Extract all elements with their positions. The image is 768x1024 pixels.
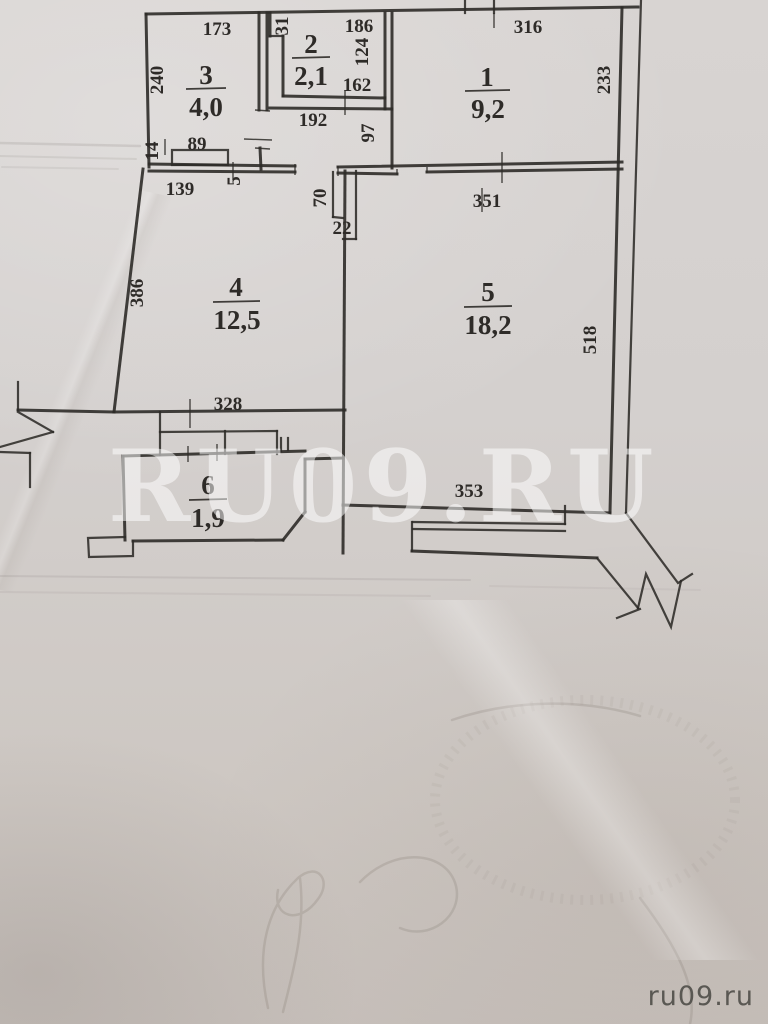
- stamp-ghost: [435, 700, 735, 900]
- dim-14: 14: [142, 141, 163, 161]
- dim-233: 233: [594, 66, 615, 95]
- dim-124: 124: [352, 37, 373, 66]
- floorplan-photo: 1 9,2 2 2,1 3 4,0 4 12,5 5 18,2 6 1,9 17…: [0, 0, 768, 1024]
- dim-31: 31: [272, 17, 293, 36]
- dim-386: 386: [127, 279, 148, 308]
- room-6-number: 6: [201, 470, 215, 500]
- pen-impression-scribbles: [263, 704, 692, 1024]
- room-3-number: 3: [199, 60, 213, 90]
- dim-97: 97: [358, 123, 379, 143]
- room-4-number: 4: [229, 272, 243, 302]
- dim-5: 5: [224, 176, 245, 186]
- room-6-area: 1,9: [191, 503, 225, 533]
- walls-thick: [18, 7, 638, 558]
- dim-351: 351: [473, 191, 502, 212]
- dim-316: 316: [514, 17, 543, 38]
- dim-162: 162: [343, 75, 372, 96]
- dim-328: 328: [214, 394, 243, 415]
- dim-518: 518: [580, 326, 601, 355]
- room-3-area: 4,0: [189, 92, 223, 122]
- dim-186: 186: [345, 16, 374, 37]
- room-1-area: 9,2: [471, 94, 505, 124]
- room-5-area: 18,2: [464, 310, 511, 340]
- floorplan-drawing: 1 9,2 2 2,1 3 4,0 4 12,5 5 18,2 6 1,9 17…: [0, 0, 768, 1024]
- room-2-area: 2,1: [294, 61, 328, 91]
- dim-240: 240: [147, 66, 168, 95]
- dim-70: 70: [310, 189, 331, 208]
- dim-353: 353: [455, 481, 484, 502]
- room-1-number: 1: [480, 62, 494, 92]
- dim-173: 173: [203, 19, 232, 40]
- room-5-number: 5: [481, 277, 495, 307]
- dim-192: 192: [299, 110, 328, 131]
- paper-showthrough-marks: [0, 143, 700, 596]
- room-2-number: 2: [304, 29, 318, 59]
- room-labels: 1 9,2 2 2,1 3 4,0 4 12,5 5 18,2 6 1,9: [189, 29, 512, 533]
- dim-89: 89: [188, 134, 207, 155]
- dim-22: 22: [333, 218, 352, 239]
- dim-139: 139: [166, 179, 195, 200]
- site-credit-text: ru09.ru: [648, 981, 754, 1012]
- room-4-area: 12,5: [213, 305, 260, 335]
